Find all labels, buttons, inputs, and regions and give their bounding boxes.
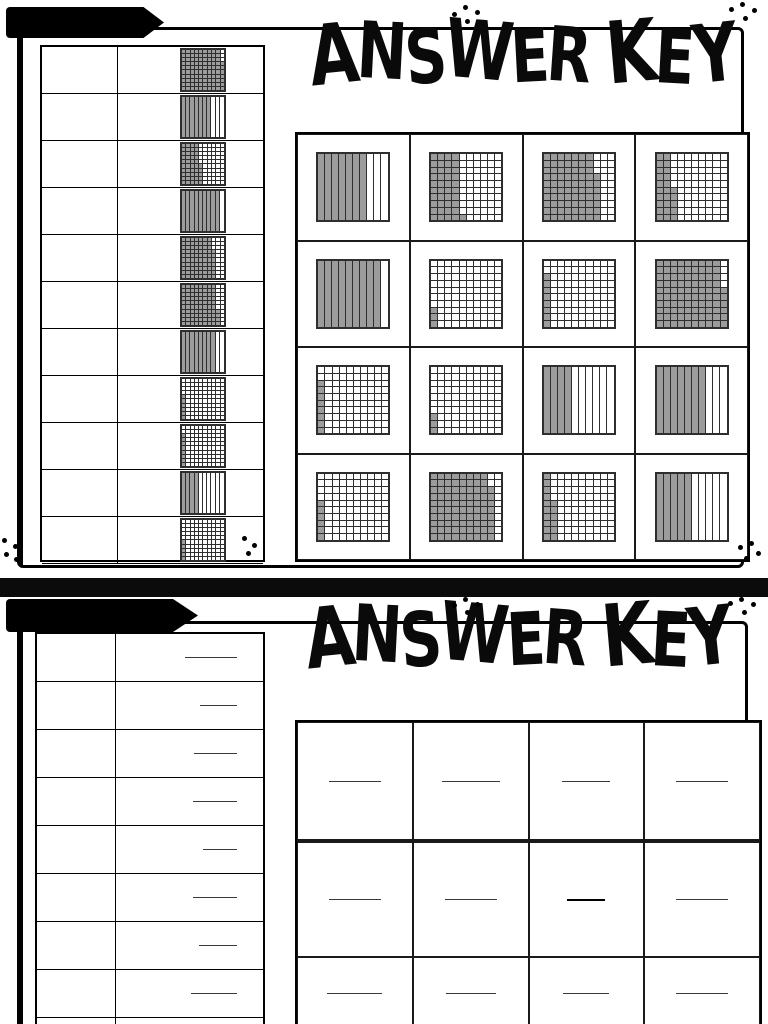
hundredths-cell (212, 426, 215, 429)
hundredths-cell (671, 194, 677, 200)
hundredths-cell (721, 215, 727, 221)
hundredths-cell (195, 177, 198, 180)
hundredths-cell (495, 501, 501, 507)
hundredths-cell (495, 181, 501, 187)
hundredths-cell (186, 387, 189, 390)
hundredths-cell (579, 301, 585, 307)
hundredths-cell (195, 254, 198, 257)
hundredths-cell (572, 487, 578, 493)
hundredths-cell (221, 50, 224, 53)
decorative-dot (749, 541, 754, 546)
hundredths-cell (216, 532, 219, 535)
hundredths-cell (208, 275, 211, 278)
hundredths-cell (467, 308, 473, 314)
hundredths-cell (361, 407, 367, 413)
hundredths-cell (340, 401, 346, 407)
hundredths-cell (216, 322, 219, 325)
hundredths-cell (431, 428, 437, 434)
hundredths-cell (699, 308, 705, 314)
tenths-bar (220, 473, 224, 513)
hundredths-cell (481, 301, 487, 307)
table-cell-right (116, 874, 263, 921)
hundredths-cell (565, 168, 571, 174)
hundredths-cell (431, 487, 437, 493)
hundredths-cell (601, 480, 607, 486)
hundredths-cell (685, 154, 691, 160)
hundredths-cell (186, 532, 189, 535)
hundredths-cell (445, 154, 451, 160)
hundredths-cell (713, 294, 719, 300)
hundredths-cell (182, 395, 185, 398)
hundredths-cell (191, 426, 194, 429)
hundredths-cell (481, 381, 487, 387)
hundredths-cell (664, 181, 670, 187)
hundredths-cell (182, 254, 185, 257)
hundredths-cell (467, 480, 473, 486)
hundredths-cell (664, 301, 670, 307)
hundredths-cell (467, 154, 473, 160)
hundredths-cell (721, 194, 727, 200)
hundredths-cell (579, 487, 585, 493)
hundredths-cell (431, 314, 437, 320)
hundredths-cell (186, 50, 189, 53)
hundredths-cell (460, 215, 466, 221)
hundredths-cell (354, 387, 360, 393)
questions-table (40, 45, 265, 562)
hundredths-cell (586, 301, 592, 307)
hundredths-cell (221, 297, 224, 300)
hundredths-cell (664, 294, 670, 300)
hundredths-cell (481, 261, 487, 267)
hundredths-cell (438, 301, 444, 307)
hundredths-cell (382, 474, 388, 480)
hundredths-cell (221, 426, 224, 429)
hundredths-cell (445, 367, 451, 373)
hundredths-cell (203, 289, 206, 292)
hundredths-cell (460, 381, 466, 387)
hundredths-cell (361, 487, 367, 493)
hundredths-cell (186, 442, 189, 445)
answer-blank-line (676, 899, 728, 900)
hundredths-cell (460, 201, 466, 207)
hundredths-cell (208, 391, 211, 394)
hundredths-cell (182, 391, 185, 394)
hundredths-cell (431, 374, 437, 380)
hundredths-cell (208, 399, 211, 402)
hundredths-cell (481, 208, 487, 214)
hundredths-cell (216, 275, 219, 278)
hundredths-cell (186, 520, 189, 523)
hundredths-cell (721, 288, 727, 294)
hundredths-cell (195, 314, 198, 317)
hundredths-cell (601, 534, 607, 540)
hundredths-cell (692, 168, 698, 174)
hundredths-cell (208, 156, 211, 159)
table-cell-right (118, 47, 263, 93)
hundredths-cell (208, 463, 211, 466)
hundredths-cell (460, 474, 466, 480)
hundredths-cell (460, 521, 466, 527)
hundredths-cell (347, 367, 353, 373)
hundredths-cell (452, 168, 458, 174)
hundredths-cell (474, 208, 480, 214)
hundredths-cell (186, 173, 189, 176)
hundredths-cell (452, 154, 458, 160)
hundredths-cell (221, 557, 224, 560)
table-cell-right (116, 634, 263, 681)
hundredths-cell (347, 534, 353, 540)
hundredths-cell (671, 267, 677, 273)
hundredths-cell (671, 188, 677, 194)
hundredths-cell (221, 263, 224, 266)
hundredths-cell (594, 215, 600, 221)
hundredths-cell (354, 534, 360, 540)
hundredths-cell (221, 169, 224, 172)
hundredths-cell (452, 414, 458, 420)
tenths-bar (671, 474, 678, 540)
hundredths-cell (195, 318, 198, 321)
hundredths-cell (216, 451, 219, 454)
hundredths-cell (685, 308, 691, 314)
hundredths-cell (203, 285, 206, 288)
hundredths-cell (182, 70, 185, 73)
hundredths-cell (212, 408, 215, 411)
tenths-bar (685, 367, 692, 433)
hundredths-cell (601, 267, 607, 273)
hundredths-cell (551, 188, 557, 194)
hundredths-cell (208, 318, 211, 321)
hundredths-cell (488, 321, 494, 327)
hundredths-cell (474, 281, 480, 287)
hundredths-cell (452, 487, 458, 493)
hundredths-cell (195, 379, 198, 382)
grid-cell (410, 241, 523, 348)
hundredths-cell (375, 474, 381, 480)
hundredths-cell (203, 532, 206, 535)
hundredths-cell (431, 501, 437, 507)
hundredths-cell (221, 416, 224, 419)
hundredths-cell (186, 416, 189, 419)
title-letter: N (355, 12, 407, 92)
hundredths-cell (216, 416, 219, 419)
hundredths-cell (692, 161, 698, 167)
hundredths-cell (216, 79, 219, 82)
hundredths-cell (594, 521, 600, 527)
hundredths-cell (572, 215, 578, 221)
hundredths-cell (212, 275, 215, 278)
hundredths-cell (208, 545, 211, 548)
hundredths-cell (551, 321, 557, 327)
hundredths-cell (551, 281, 557, 287)
hundredths-cell (208, 173, 211, 176)
hundredths-cell (558, 534, 564, 540)
tenths-bar (579, 367, 586, 433)
hundredths-cell (544, 267, 550, 273)
hundredths-cell (438, 321, 444, 327)
hundredths-cell (191, 446, 194, 449)
hundredths-cell (203, 536, 206, 539)
hundredths-cell (565, 267, 571, 273)
tenths-bar (346, 261, 353, 327)
hundredths-cell (594, 527, 600, 533)
hundredths-cell (438, 194, 444, 200)
hundredths-cell (572, 494, 578, 500)
hundredths-cell (221, 173, 224, 176)
hundredths-cell (572, 261, 578, 267)
hundredths-cell (203, 301, 206, 304)
hundredths-cell (544, 188, 550, 194)
grid-cell (410, 347, 523, 454)
answer-blank-line (199, 945, 237, 946)
hundredths-cell (203, 148, 206, 151)
hundredths-cell (203, 173, 206, 176)
tenths-bar (325, 261, 332, 327)
hundredths-cell (212, 536, 215, 539)
hundredths-cell (713, 161, 719, 167)
hundredths-cell (368, 514, 374, 520)
hundredths-cell (208, 254, 211, 257)
hundredths-cell (212, 87, 215, 90)
hundredths-cell (488, 168, 494, 174)
hundredths-cell (467, 208, 473, 214)
hundredths-cell (333, 394, 339, 400)
table-row (37, 826, 263, 874)
hundredths-cell (579, 174, 585, 180)
table-cell-left (42, 423, 118, 469)
hundredths-cell (208, 285, 211, 288)
hundredths-cell (221, 267, 224, 270)
hundredths-cell (488, 181, 494, 187)
hundredths-cell (544, 168, 550, 174)
hundredths-cell (551, 521, 557, 527)
hundredths-cell (495, 401, 501, 407)
hundredths-cell (664, 154, 670, 160)
hundredths-cell (375, 401, 381, 407)
hundredths-cell (375, 381, 381, 387)
hundredths-cell (551, 194, 557, 200)
hundredths-cell (664, 308, 670, 314)
hundredths-cell (221, 399, 224, 402)
tenths-bar (367, 261, 374, 327)
hundredths-cell (488, 274, 494, 280)
hundredths-cell (182, 524, 185, 527)
hundredths-cell (452, 381, 458, 387)
hundredths-cell (186, 545, 189, 548)
hundredths-cell (221, 254, 224, 257)
hundredths-cell (191, 532, 194, 535)
hundredths-cell (208, 305, 211, 308)
hundredths-cell (452, 281, 458, 287)
hundredths-cell (445, 421, 451, 427)
hundredths-cell (572, 194, 578, 200)
hundredths-cell (221, 177, 224, 180)
hundredths-cell (586, 474, 592, 480)
hundredths-cell (375, 521, 381, 527)
hundredths-cell (551, 267, 557, 273)
hundredths-cell (182, 289, 185, 292)
tenths-bar (318, 154, 325, 220)
hundredths-cell (467, 288, 473, 294)
hundredths-cell (318, 401, 324, 407)
tenths-bar (565, 367, 572, 433)
hundredths-cell (203, 322, 206, 325)
hundredths-cell (212, 50, 215, 53)
hundredths-cell (445, 501, 451, 507)
hundredths-cell (354, 381, 360, 387)
hundredths-cell (182, 263, 185, 266)
hundredths-cell (594, 201, 600, 207)
hundredths-cell (212, 285, 215, 288)
hundredths-cell (692, 188, 698, 194)
hundredths-cell (212, 301, 215, 304)
grid-cell (413, 842, 529, 957)
table-cell-left (37, 682, 116, 729)
decorative-dot (739, 597, 744, 602)
answer-blank-line (193, 801, 237, 802)
hundredths-cell (191, 238, 194, 241)
hundredths-cell (199, 58, 202, 61)
hundredths-cell (203, 152, 206, 155)
hundredths-cell (195, 540, 198, 543)
hundredths-cell (208, 442, 211, 445)
hundredths-cell (195, 322, 198, 325)
hundredths-cell (685, 168, 691, 174)
hundredths-cell (208, 289, 211, 292)
hundredths-cell (182, 459, 185, 462)
hundredths-cell (212, 532, 215, 535)
hundredths-cell (212, 434, 215, 437)
hundredths-cell (375, 514, 381, 520)
hundredths-cell (601, 501, 607, 507)
hundredths-cell (460, 428, 466, 434)
hundredths-cell (199, 387, 202, 390)
hundredths-cell (182, 160, 185, 163)
table-row (42, 282, 263, 329)
hundredths-cell (199, 395, 202, 398)
hundredths-cell (216, 267, 219, 270)
hundredths-cell (657, 174, 663, 180)
hundredths-cell (579, 501, 585, 507)
hundredths-cell (699, 294, 705, 300)
hundredths-cell (361, 421, 367, 427)
answer-blank-line (442, 781, 500, 782)
hundredths-cell (182, 75, 185, 78)
hundredths-cell (216, 540, 219, 543)
hundredths-cell (671, 174, 677, 180)
hundredths-cell (199, 144, 202, 147)
hundredths-cell (203, 144, 206, 147)
hundredths-cell (544, 301, 550, 307)
decorative-dot (14, 557, 19, 562)
questions-table (35, 632, 265, 1024)
hundredths-cell (208, 164, 211, 167)
hundredths-cell (664, 288, 670, 294)
tenths-bar (671, 367, 678, 433)
hundredths-cell (431, 294, 437, 300)
hundredths-cell (221, 442, 224, 445)
hundredths-cell (713, 281, 719, 287)
hundredths-cell (558, 267, 564, 273)
hundredths-cell (318, 407, 324, 413)
hundredths-cell (488, 201, 494, 207)
hundredths-cell (195, 459, 198, 462)
hundredths-cell (191, 404, 194, 407)
hundredths-cell (460, 181, 466, 187)
hundredths-cell (208, 426, 211, 429)
hundredths-cell (551, 534, 557, 540)
hundredths-cell (438, 480, 444, 486)
hundredths-cell (671, 168, 677, 174)
hundredths-cell (221, 383, 224, 386)
hundredths-cell (208, 66, 211, 69)
hundredths-cell (565, 514, 571, 520)
answer-blank-line (329, 781, 381, 782)
hundredths-cell (199, 532, 202, 535)
grid-cell (297, 241, 410, 348)
hundredths-cell (460, 174, 466, 180)
decorative-dot (252, 543, 257, 548)
hundredths-cell (713, 308, 719, 314)
hundredths-cell (495, 381, 501, 387)
hundredths-cell (208, 455, 211, 458)
hundredths-cell (586, 534, 592, 540)
hundredths-cell (182, 275, 185, 278)
hundredths-cell (354, 421, 360, 427)
hundredths-cell (586, 514, 592, 520)
table-row (42, 47, 263, 94)
hundredths-cell (452, 374, 458, 380)
hundredths-cell (221, 532, 224, 535)
hundredths-cell (221, 549, 224, 552)
hundredths-cell (481, 514, 487, 520)
hundredths-cell (221, 164, 224, 167)
hundredths-cell (438, 401, 444, 407)
hundredths-cell (544, 194, 550, 200)
hundredths-cell (216, 58, 219, 61)
hundredths-cell (368, 407, 374, 413)
hundredths-model (655, 152, 729, 222)
hundredths-cell (594, 181, 600, 187)
hundredths-cell (199, 83, 202, 86)
hundredths-cell (565, 487, 571, 493)
hundredths-cell (586, 281, 592, 287)
hundredths-cell (678, 194, 684, 200)
tenths-bar (586, 367, 593, 433)
hundredths-cell (216, 148, 219, 151)
hundredths-cell (474, 514, 480, 520)
hundredths-cell (221, 524, 224, 527)
hundredths-model (180, 377, 226, 421)
hundredths-cell (195, 395, 198, 398)
grid-cell (644, 722, 760, 842)
hundredths-cell (318, 394, 324, 400)
hundredths-cell (721, 301, 727, 307)
tenths-bar (699, 367, 706, 433)
hundredths-cell (713, 188, 719, 194)
decorative-dot (4, 552, 9, 557)
hundredths-cell (216, 391, 219, 394)
hundredths-cell (601, 201, 607, 207)
hundredths-cell (340, 507, 346, 513)
hundredths-cell (208, 387, 211, 390)
hundredths-cell (208, 181, 211, 184)
hundredths-cell (208, 383, 211, 386)
hundredths-cell (460, 414, 466, 420)
hundredths-cell (347, 374, 353, 380)
hundredths-cell (481, 414, 487, 420)
hundredths-cell (347, 387, 353, 393)
hundredths-cell (495, 308, 501, 314)
